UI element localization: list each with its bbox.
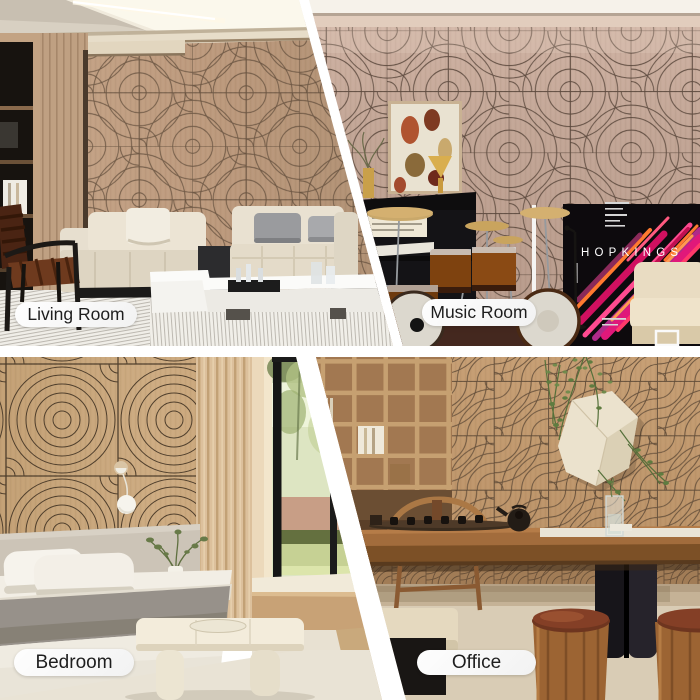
svg-text:HOPKINGS: HOPKINGS (581, 247, 683, 259)
